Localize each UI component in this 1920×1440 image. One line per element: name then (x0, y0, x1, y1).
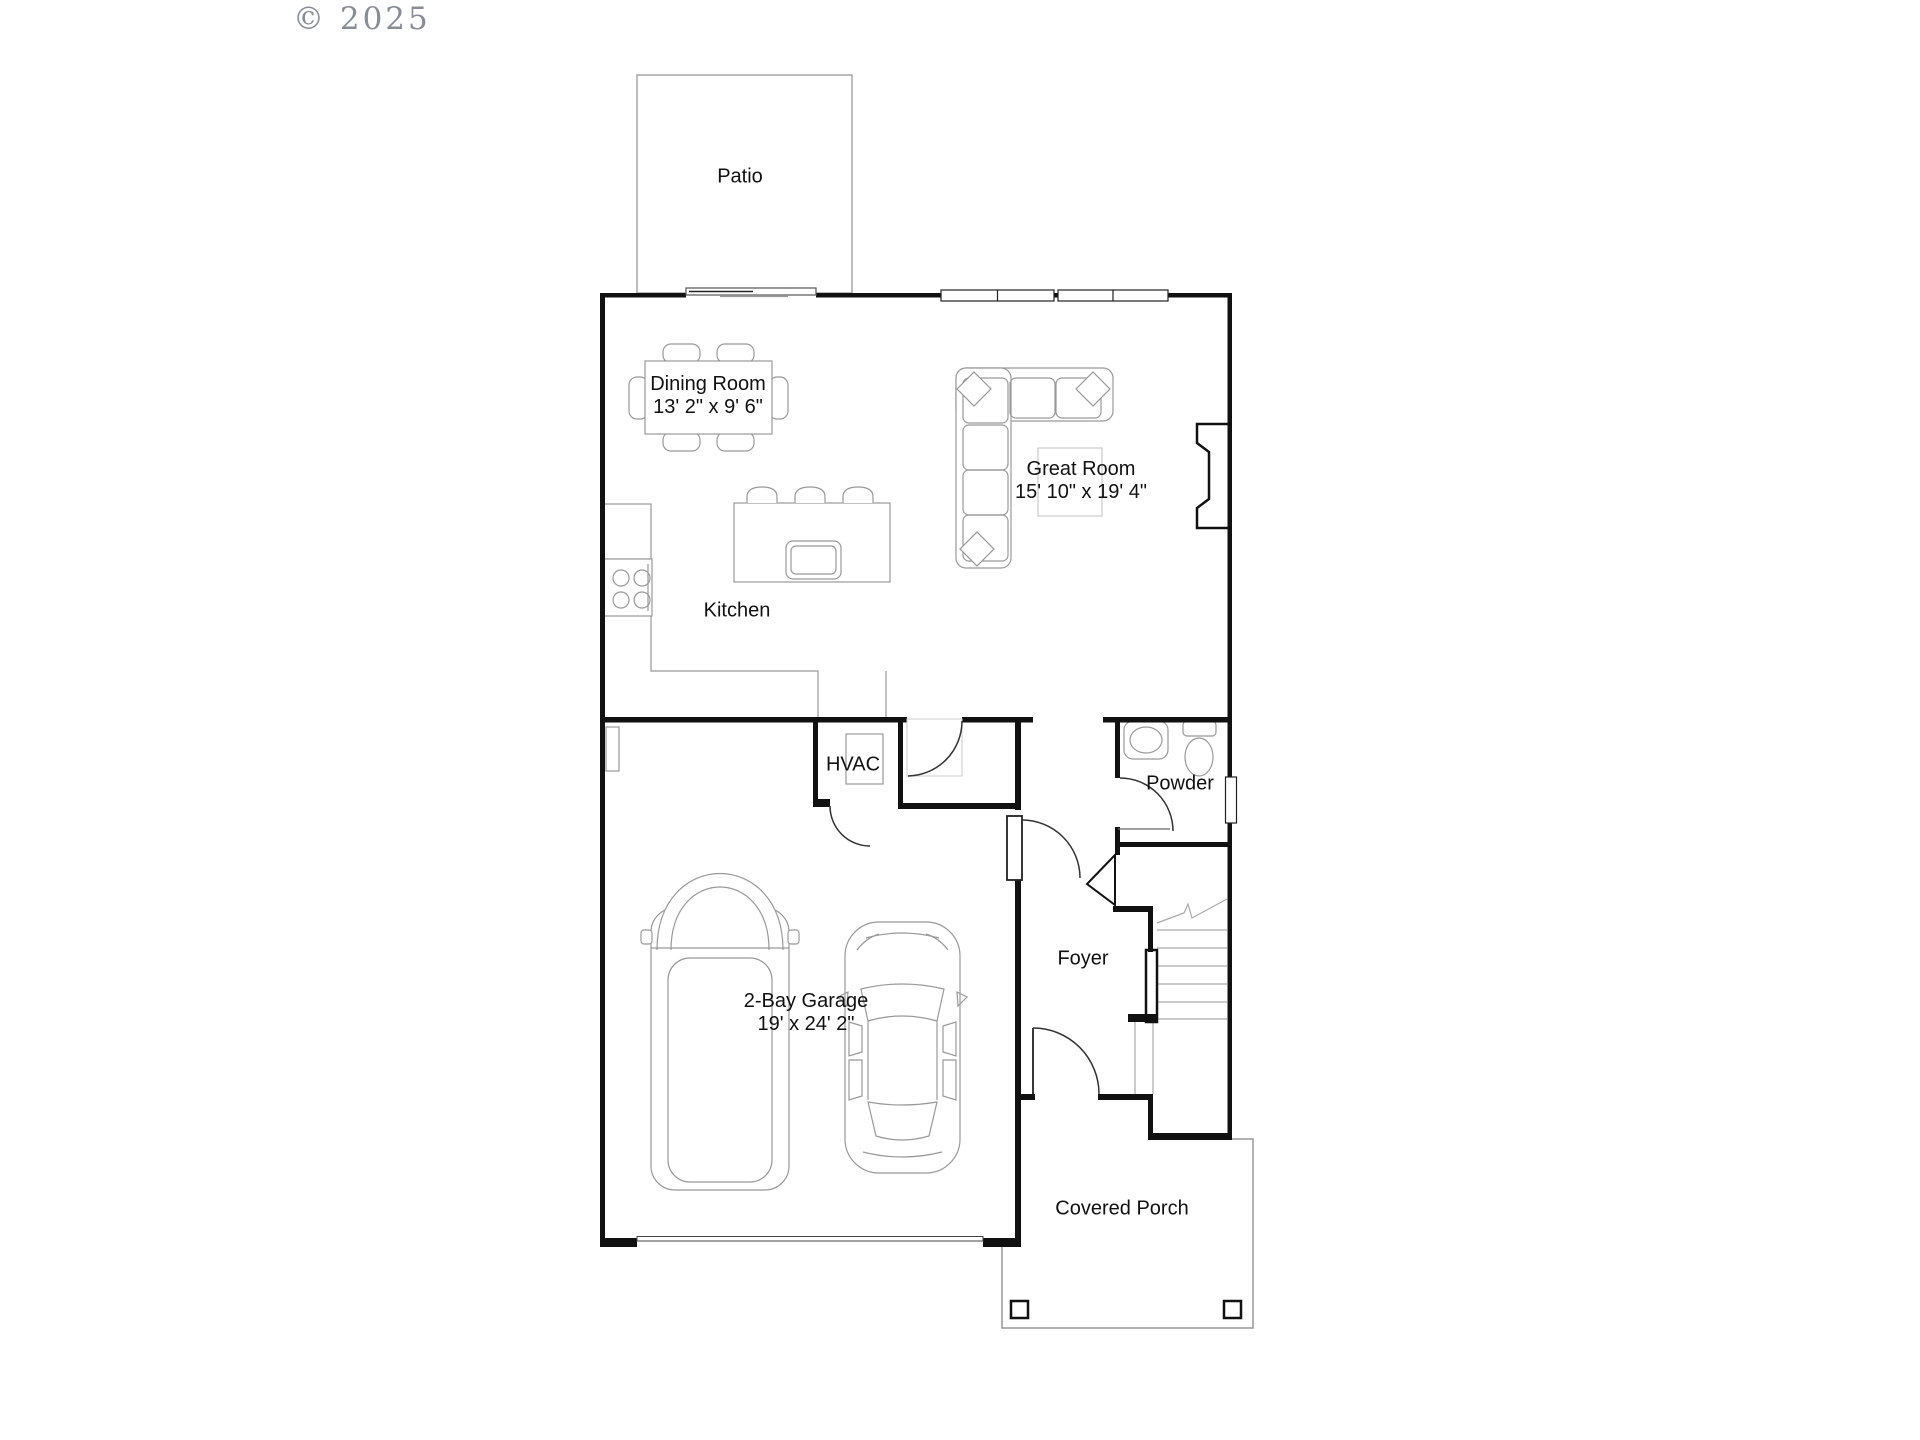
porch-posts (1011, 1301, 1241, 1318)
wall-step-vertical (1148, 1094, 1153, 1138)
room-label-patio: Patio (717, 166, 763, 189)
bar-stool (843, 487, 873, 503)
pantry-door-frame (907, 719, 962, 776)
bar-stool (795, 487, 825, 503)
sliding-patio-door (686, 288, 816, 298)
kitchen-counter (604, 504, 651, 559)
room-dimensions: 15' 10" x 19' 4" (1015, 481, 1147, 504)
room-name: Great Room (1015, 458, 1147, 481)
room-label-garage: 2-Bay Garage 19' x 24' 2" (744, 990, 869, 1036)
room-label-dining: Dining Room 13' 2" x 9' 6" (650, 373, 766, 419)
van-hood-arch (657, 874, 783, 951)
wall-top-left (600, 293, 689, 298)
room-dimensions: 13' 2" x 9' 6" (650, 396, 766, 419)
dining-chair (663, 432, 700, 451)
wall-powder-bottom (1115, 842, 1232, 847)
van-mirror (641, 930, 652, 944)
stair-railing (1146, 950, 1157, 1022)
wall-foyer-front-left (1015, 1094, 1035, 1100)
fireplace (1197, 424, 1232, 528)
toilet-tank (1183, 721, 1216, 736)
stair-break-line (1157, 899, 1227, 923)
garage-entry-door-arc (1022, 820, 1080, 878)
floor-plan-drawing (0, 0, 1920, 1440)
room-label-foyer: Foyer (1057, 948, 1108, 971)
wall-hvac-notch (813, 799, 830, 807)
bar-stool (747, 487, 777, 503)
garage-wall-fixture (606, 727, 619, 771)
vehicle-sedan (838, 922, 967, 1173)
porch-post (1011, 1301, 1028, 1318)
copyright-watermark: © 2025 (293, 1, 431, 37)
room-name: Dining Room (650, 373, 766, 396)
room-name: 2-Bay Garage (744, 990, 869, 1013)
wall-foyer-front-right (1098, 1094, 1153, 1100)
room-label-powder: Powder (1146, 773, 1214, 796)
front-door-arc (1033, 1028, 1099, 1094)
room-label-kitchen: Kitchen (704, 600, 771, 623)
wall-right (1228, 293, 1233, 1140)
room-label-great-room: Great Room 15' 10" x 19' 4" (1015, 458, 1147, 504)
wall-left (600, 293, 605, 1247)
porch-outline (1002, 1139, 1253, 1328)
wall-main-b (962, 717, 1033, 723)
powder-fixtures (1124, 721, 1216, 776)
wall-powder-top (1103, 717, 1232, 723)
wall-hvac-left (813, 722, 818, 805)
dining-chair (717, 344, 754, 363)
wall-stair-top (1113, 906, 1153, 912)
van-body (651, 908, 789, 1190)
room-label-hvac: HVAC (826, 754, 880, 777)
wall-powder-left (1115, 722, 1120, 778)
stair-railing-cap (1128, 1014, 1157, 1022)
pantry-door-arc (908, 721, 962, 776)
window-powder (1226, 777, 1237, 823)
dining-chair (717, 432, 754, 451)
wall-hvac-right (898, 722, 903, 805)
wall-garage-bottom-left (600, 1238, 637, 1247)
cased-opening-chevron (1087, 855, 1115, 905)
hvac-door-arc (830, 806, 870, 846)
garage-door (637, 1237, 983, 1242)
porch-post (1224, 1301, 1241, 1318)
wall-pantry-bottom (898, 803, 1019, 809)
dining-chair (663, 344, 700, 363)
wall-garage-right-upper (1015, 718, 1021, 810)
wall-stair-vertical (1148, 906, 1153, 952)
room-dimensions: 19' x 24' 2" (744, 1013, 869, 1036)
kitchen-island (734, 503, 890, 582)
wall-powder-stub (1115, 827, 1120, 855)
room-label-covered-porch: Covered Porch (1055, 1198, 1188, 1221)
van-mirror (788, 930, 799, 944)
wall-main-a (600, 717, 907, 723)
toilet-bowl (1185, 738, 1213, 776)
wall-garage-right-lower (1015, 878, 1021, 1247)
garage-entry-door-leaf (1007, 816, 1022, 880)
wall-step-horizontal (1148, 1133, 1232, 1140)
floor-plan-page: © 2025 Patio Dining Room 13' 2" x 9' 6" … (0, 0, 1920, 1440)
counter-edge (651, 616, 818, 717)
